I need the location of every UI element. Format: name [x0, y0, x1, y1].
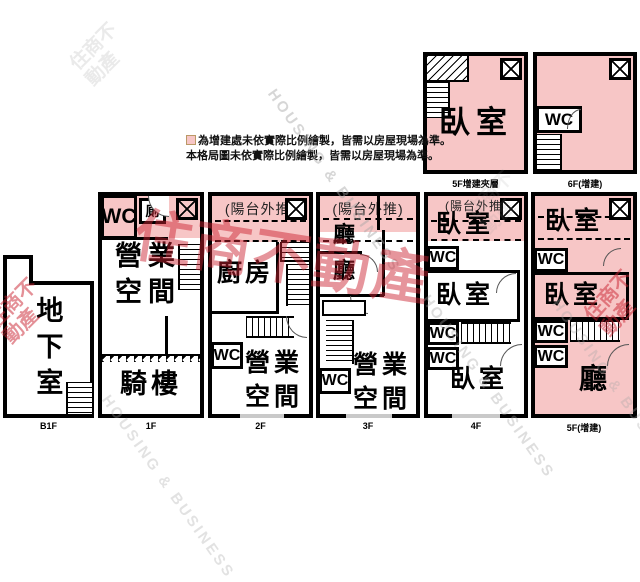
room-wc: WC: [319, 368, 351, 394]
wall: [428, 270, 520, 273]
room-label-arcade: 騎樓: [114, 368, 188, 400]
room-label-business: 營業空間: [108, 238, 188, 310]
floor-plan-b1f-notch: [3, 255, 33, 285]
addition-dashed-line: [431, 239, 521, 241]
room-label-hall: 廳: [563, 362, 623, 396]
shaft-x-icon: [176, 198, 198, 220]
entry-gap: [346, 414, 392, 418]
door-arc-icon: [496, 273, 516, 293]
room-label-business: 營業空間: [350, 348, 414, 416]
room-wc-2: WC: [427, 322, 459, 345]
floor-plan-3f: (陽台外推) 廳 廳 WC 營業空間: [316, 192, 420, 418]
storefront-zigzag: [102, 354, 200, 362]
shaft-x-icon: [500, 58, 522, 80]
floor-tag-6f: 6F(增建): [533, 177, 637, 190]
room-label-bedroom-middle: 臥室: [432, 280, 498, 310]
floor-tag-2f: 2F: [208, 421, 313, 431]
room-label-bedroom-middle: 臥室: [539, 280, 607, 310]
floor-tag-4f: 4F: [424, 421, 528, 431]
floor-plan-6f: WC: [533, 52, 637, 174]
room-label-bedroom-front: 臥室: [432, 209, 498, 239]
door-arc-icon: [603, 248, 621, 266]
room-wc: WC: [211, 342, 243, 369]
room-wc: WC: [101, 195, 137, 239]
wall: [320, 251, 362, 254]
room-wc-2: WC: [534, 320, 568, 343]
entry-gap: [240, 414, 284, 418]
wall: [626, 272, 629, 320]
stairs: [461, 322, 511, 344]
disclaimer-text-2: 本格局圖未依實際比例繪製，皆需以房屋現場為準。: [186, 150, 439, 162]
wall: [165, 316, 168, 356]
room-label-bedroom-rear: 臥室: [442, 364, 516, 394]
stairs: [570, 320, 620, 342]
disclaimer-text-1: 為增建處未依實際比例繪製，皆需以房屋現場為準。: [198, 135, 451, 147]
disclaimer: 為增建處未依實際比例繪製，皆需以房屋現場為準。 本格局圖未依實際比例繪製，皆需以…: [186, 134, 451, 164]
shaft-x-icon: [285, 198, 307, 220]
addition-dashed-line: [323, 218, 413, 220]
stairs: [66, 382, 92, 414]
wall: [517, 270, 520, 322]
floor-plan-4f: (陽台外推) 臥室 WC 臥室 WC WC 臥室: [424, 192, 528, 418]
elevator-box: [322, 300, 366, 316]
stairs-winder: [427, 56, 469, 82]
floor-plan-2f: (陽台外推) 廚房 WC 營業空間: [208, 192, 313, 418]
room-label-hall-lower: 廳: [324, 258, 364, 284]
door-arc-icon: [360, 254, 378, 272]
floor-plan-5f: 臥室 WC 臥室 WC WC 廳: [531, 192, 637, 418]
addition-dashed-line: [431, 220, 521, 222]
stairs: [286, 264, 309, 306]
wall: [276, 242, 279, 314]
stairs: [280, 242, 309, 262]
floor-tag-5f-mezzanine: 5F增建夾層: [423, 177, 528, 190]
wall: [377, 196, 380, 230]
wall: [212, 311, 279, 314]
addition-dashed-line: [215, 220, 306, 222]
shaft-x-icon: [500, 198, 522, 220]
shaft-x-icon: [609, 198, 631, 220]
shaft-x-icon: [609, 58, 631, 80]
room-label-basement: 地下室: [31, 289, 63, 411]
floor-tag-b1f: B1F: [3, 421, 94, 431]
room-wc-1: WC: [534, 248, 568, 272]
room-wc-1: WC: [427, 246, 459, 270]
room-label-business: 營業空間: [240, 346, 308, 414]
balcony-note: (陽台外推): [320, 199, 416, 219]
floor-plan-1f: WC 廁 營業空間 騎樓: [98, 192, 204, 418]
wall: [382, 230, 385, 296]
room-label-hall-upper: 廳: [324, 222, 364, 248]
floor-tag-5f: 5F(增建): [531, 421, 637, 434]
room-label-kitchen: 廚房: [214, 258, 276, 288]
brand-watermark-icon: 住商不動產: [66, 13, 144, 91]
addition-color-swatch: [186, 135, 196, 145]
floor-tag-3f: 3F: [316, 421, 420, 431]
room-label-bedroom-front: 臥室: [539, 206, 609, 236]
stairs: [537, 134, 562, 170]
disclaimer-line-2: 本格局圖未依實際比例繪製，皆需以房屋現場為準。: [186, 149, 451, 164]
door-arc-icon: [500, 344, 522, 366]
addition-dashed-line: [538, 238, 630, 240]
floor-plan-b1f: 地下室: [3, 281, 94, 418]
disclaimer-line-1: 為增建處未依實際比例繪製，皆需以房屋現場為準。: [186, 134, 451, 149]
floor-plan-sheet: { "legend": { "line1": "為增建處未依實際比例繪製，皆需以…: [0, 0, 640, 480]
entry-gap: [452, 414, 500, 418]
wall: [535, 272, 629, 275]
floor-tag-1f: 1F: [98, 421, 204, 431]
